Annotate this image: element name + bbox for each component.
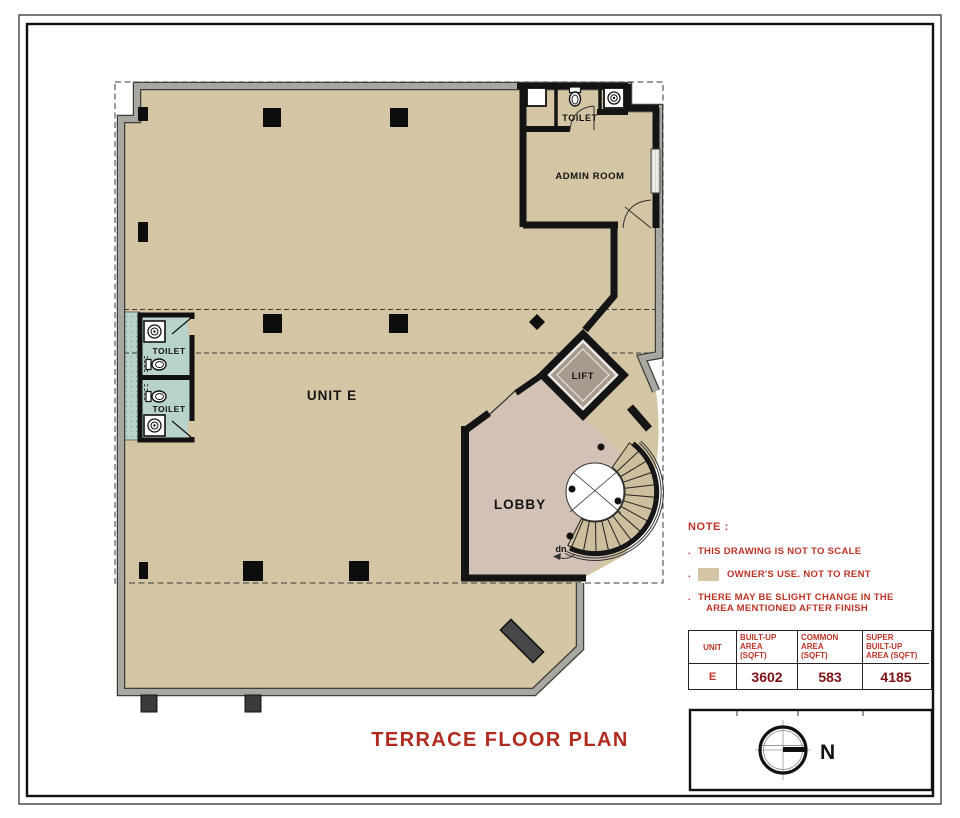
- area-table: UNIT BUILT-UP AREA (SQFT) COMMON AREA (S…: [688, 630, 932, 690]
- lift-label: LIFT: [572, 371, 594, 382]
- duct-shaft: [527, 88, 546, 106]
- cell-unit: E: [689, 664, 737, 689]
- owner-use-swatch: [698, 568, 719, 581]
- col-header-unit: UNIT: [689, 631, 737, 664]
- toilet-lower-label: TOILET: [152, 404, 185, 414]
- parapet-columns: [141, 695, 261, 712]
- toilet-icon: [146, 359, 166, 370]
- toilet-icon: [570, 87, 581, 106]
- note-heading: NOTE :: [688, 521, 948, 533]
- stair-down-label: dn: [556, 544, 567, 554]
- lobby-label: LOBBY: [494, 497, 546, 512]
- drawing-sheet: TOILET TOILET: [0, 0, 960, 818]
- col-header-super: SUPER BUILT-UP AREA (SQFT): [863, 631, 929, 664]
- unit-label: UNIT E: [307, 388, 357, 403]
- service-strip: [123, 312, 140, 440]
- note-item-legend: . OWNER'S USE. NOT TO RENT: [688, 568, 948, 581]
- north-pointer: [783, 747, 806, 752]
- cell-common-area: 583: [798, 664, 863, 689]
- left-toilet-block: TOILET TOILET: [140, 315, 197, 440]
- toilet-upper-label: TOILET: [152, 346, 185, 356]
- col-header-builtup: BUILT-UP AREA (SQFT): [737, 631, 798, 664]
- col-header-common: COMMON AREA (SQFT): [798, 631, 863, 664]
- compass: N: [690, 710, 932, 790]
- admin-window: [651, 149, 660, 193]
- cell-super-area: 4185: [863, 664, 929, 689]
- toilet-top-label: TOILET: [562, 113, 597, 123]
- sink-icon: [604, 88, 624, 108]
- sink-icon: [144, 415, 165, 436]
- toilet-icon: [146, 391, 166, 402]
- cell-builtup-area: 3602: [737, 664, 798, 689]
- north-label: N: [820, 741, 835, 764]
- floor-plan-drawing: TOILET TOILET: [0, 0, 960, 818]
- note-block: NOTE : . THIS DRAWING IS NOT TO SCALE . …: [688, 521, 948, 625]
- admin-room-label: ADMIN ROOM: [555, 171, 624, 182]
- note-item: . THIS DRAWING IS NOT TO SCALE: [688, 546, 948, 557]
- note-item: . THERE MAY BE SLIGHT CHANGE IN THE AREA…: [688, 592, 948, 614]
- stair-void: [566, 463, 624, 521]
- sink-icon: [144, 321, 165, 342]
- sheet-title: TERRACE FLOOR PLAN: [310, 729, 690, 752]
